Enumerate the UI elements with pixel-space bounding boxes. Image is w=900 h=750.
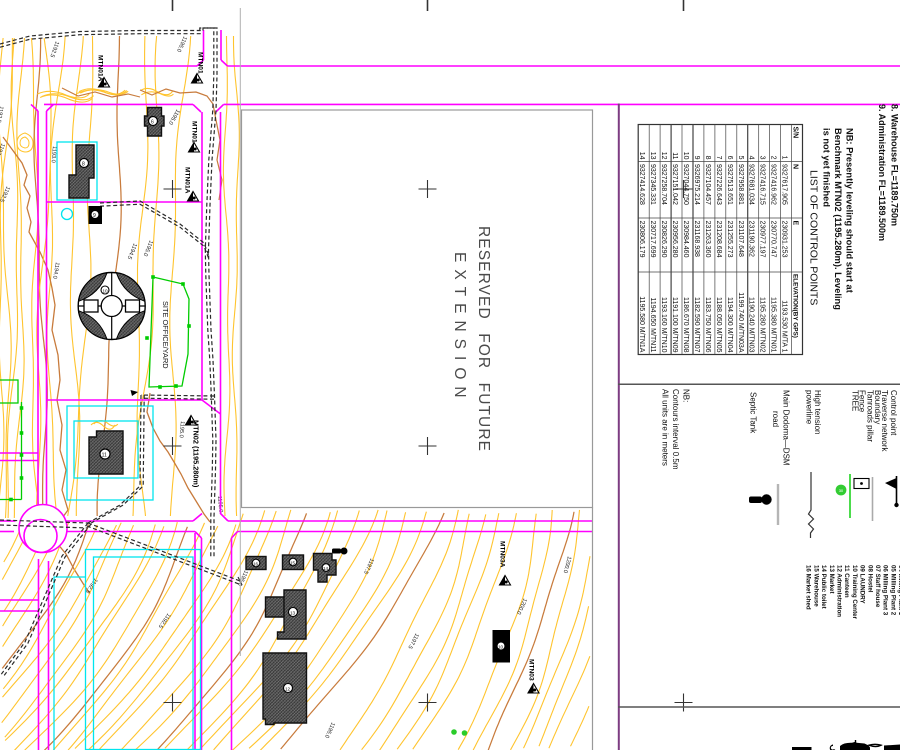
svg-text:1186.670 M/TN08: 1186.670 M/TN08	[682, 297, 689, 353]
svg-text:9: 9	[693, 156, 700, 160]
svg-text:231190.362: 231190.362	[748, 221, 755, 258]
svg-text:10: 10	[682, 152, 689, 160]
svg-text:S/N: S/N	[792, 127, 799, 139]
svg-text:16 Market shed: 16 Market shed	[805, 565, 812, 610]
svg-text:9327513.651: 9327513.651	[726, 164, 733, 205]
svg-text:ELEVATION(BY GPS): ELEVATION(BY GPS)	[792, 274, 799, 338]
svg-text:2: 2	[770, 156, 777, 160]
svg-text:16: 16	[253, 561, 259, 566]
svg-text:3: 3	[759, 156, 766, 160]
svg-text:8. Warehouse FL=1189.750m: 8. Warehouse FL=1189.750m	[890, 104, 900, 226]
svg-text:13: 13	[290, 611, 296, 616]
svg-text:230984.460: 230984.460	[682, 221, 689, 258]
svg-text:9327416.962: 9327416.962	[770, 164, 777, 205]
svg-text:5: 5	[737, 156, 744, 160]
svg-text:powerline: powerline	[805, 390, 814, 425]
svg-text:231168.938: 231168.938	[693, 221, 700, 258]
svg-text:1190.240 M/TN03: 1190.240 M/TN03	[748, 297, 755, 353]
svg-text:MTN02 (1195.280m): MTN02 (1195.280m)	[192, 420, 201, 488]
svg-text:14 Public toilet: 14 Public toilet	[820, 565, 827, 609]
svg-text:9327681.034: 9327681.034	[748, 164, 755, 205]
svg-text:N: N	[792, 164, 799, 169]
svg-text:1195.280 M/TN02: 1195.280 M/TN02	[759, 297, 766, 353]
svg-text:1191.100 M/TN09: 1191.100 M/TN09	[671, 297, 678, 353]
svg-text:9327104.457: 9327104.457	[704, 164, 711, 205]
svg-text:9327345.331: 9327345.331	[649, 164, 656, 205]
svg-text:230717.699: 230717.699	[649, 221, 656, 258]
svg-text:9327617.905: 9327617.905	[781, 164, 788, 205]
svg-text:1: 1	[781, 156, 788, 160]
svg-text:14: 14	[638, 152, 645, 160]
svg-text:MTN03A: MTN03A	[499, 541, 506, 568]
svg-text:EXTENSION: EXTENSION	[451, 252, 468, 405]
svg-text:9327151.042: 9327151.042	[671, 164, 678, 205]
svg-text:9327416.715: 9327416.715	[759, 164, 766, 205]
svg-text:230956.280: 230956.280	[671, 221, 678, 258]
svg-text:4: 4	[748, 156, 755, 160]
svg-text:12 Administration: 12 Administration	[836, 565, 843, 617]
svg-text:15: 15	[290, 560, 296, 565]
svg-text:10: 10	[103, 288, 109, 293]
svg-text:10: 10	[498, 644, 504, 649]
svg-text:10 Training Center: 10 Training Center	[851, 565, 858, 620]
svg-text:is not yet finished: is not yet finished	[822, 128, 832, 207]
svg-text:Septic Tank: Septic Tank	[749, 392, 758, 434]
svg-text:Control point: Control point	[889, 390, 898, 436]
svg-text:TREE: TREE	[851, 390, 860, 411]
svg-text:1183.750 M/TN06: 1183.750 M/TN06	[704, 297, 711, 353]
svg-text:Benchmark MTN02 (1195.280m). L: Benchmark MTN02 (1195.280m). Leveling	[833, 128, 843, 310]
svg-text:MTN01: MTN01	[197, 52, 204, 74]
svg-text:Contours interval 0.5m: Contours interval 0.5m	[671, 389, 680, 470]
svg-text:1193.160 M/TN10: 1193.160 M/TN10	[660, 297, 667, 353]
svg-text:road: road	[771, 411, 780, 427]
svg-text:NB: Presently leveling should: NB: Presently leveling should start at	[845, 128, 855, 293]
svg-text:1199.740 M/TN03A: 1199.740 M/TN03A	[737, 292, 744, 353]
svg-text:NB:: NB:	[682, 389, 691, 402]
svg-text:11 Canteen: 11 Canteen	[843, 565, 850, 598]
svg-text:MTN01A: MTN01A	[97, 55, 104, 82]
svg-text:8: 8	[704, 156, 711, 160]
svg-text:9: 9	[93, 213, 96, 219]
svg-text:08 Hostel: 08 Hostel	[866, 565, 873, 593]
svg-text:230826.290: 230826.290	[660, 221, 667, 258]
svg-text:231263.360: 231263.360	[704, 221, 711, 258]
svg-text:13: 13	[649, 152, 656, 160]
svg-text:SITE OFFICE/YARD: SITE OFFICE/YARD	[161, 301, 170, 369]
svg-text:230977.197: 230977.197	[759, 221, 766, 258]
svg-text:LIST OF CONTROL POINTS: LIST OF CONTROL POINTS	[808, 170, 820, 305]
svg-text:13 Market: 13 Market	[828, 565, 835, 594]
svg-text:6: 6	[151, 119, 154, 125]
svg-text:07 Staff house: 07 Staff house	[874, 565, 881, 608]
svg-text:11: 11	[671, 152, 678, 159]
svg-text:11: 11	[102, 453, 107, 459]
svg-text:9327414.628: 9327414.628	[638, 164, 645, 205]
svg-text:All units are in meters: All units are in meters	[661, 389, 670, 466]
svg-text:MTN01: MTN01	[191, 121, 198, 143]
svg-text:15 Warehouse: 15 Warehouse	[812, 565, 819, 607]
svg-text:1194.650 M/TN11: 1194.650 M/TN11	[649, 298, 656, 353]
svg-text:230770.747: 230770.747	[770, 221, 777, 258]
svg-text:9. Administration FL=1189.500m: 9. Administration FL=1189.500m	[877, 104, 887, 241]
svg-text:05 Milling Plant 2: 05 Milling Plant 2	[889, 565, 896, 616]
svg-text:7: 7	[715, 156, 722, 160]
svg-text:231255.273: 231255.273	[726, 221, 733, 258]
svg-text:1193.530 M/TA 1: 1193.530 M/TA 1	[781, 300, 788, 352]
svg-text:1195.580 M/TN1A: 1195.580 M/TN1A	[638, 296, 645, 353]
svg-text:9327258.704: 9327258.704	[660, 164, 667, 205]
svg-text:09 LAUNDRY: 09 LAUNDRY	[859, 565, 866, 604]
svg-text:12: 12	[660, 152, 667, 160]
svg-text:MTN01A: MTN01A	[184, 167, 191, 194]
svg-text:06 Milling Plant 3: 06 Milling Plant 3	[882, 565, 889, 616]
svg-text:230806.179: 230806.179	[638, 221, 645, 258]
svg-text:6: 6	[726, 156, 733, 160]
svg-text:14: 14	[323, 566, 329, 571]
svg-text:230931.253: 230931.253	[781, 221, 788, 258]
svg-text:8: 8	[82, 161, 85, 167]
svg-text:9327958.881: 9327958.881	[737, 164, 744, 205]
svg-text:30: 30	[839, 488, 844, 493]
svg-text:9327226.643: 9327226.643	[715, 164, 722, 205]
svg-text:1195.380 M/TN01: 1195.380 M/TN01	[770, 297, 777, 353]
svg-text:1188.050 M/TN05: 1188.050 M/TN05	[715, 297, 722, 353]
svg-text:9327044.750: 9327044.750	[682, 164, 689, 205]
svg-text:E: E	[792, 221, 799, 226]
svg-text:231208.684: 231208.684	[715, 221, 722, 258]
svg-text:MTN03: MTN03	[528, 659, 535, 681]
svg-text:Main Dodoma—DSM: Main Dodoma—DSM	[782, 390, 791, 466]
svg-text:231107.648: 231107.648	[737, 221, 744, 258]
svg-text:1194.300 M/TN04: 1194.300 M/TN04	[726, 297, 733, 353]
svg-text:RESERVED FOR FUTURE: RESERVED FOR FUTURE	[475, 226, 492, 452]
svg-text:1182.590 M/TN07: 1182.590 M/TN07	[693, 297, 700, 353]
svg-text:9326975.214: 9326975.214	[693, 164, 700, 205]
svg-text:12: 12	[285, 687, 291, 692]
